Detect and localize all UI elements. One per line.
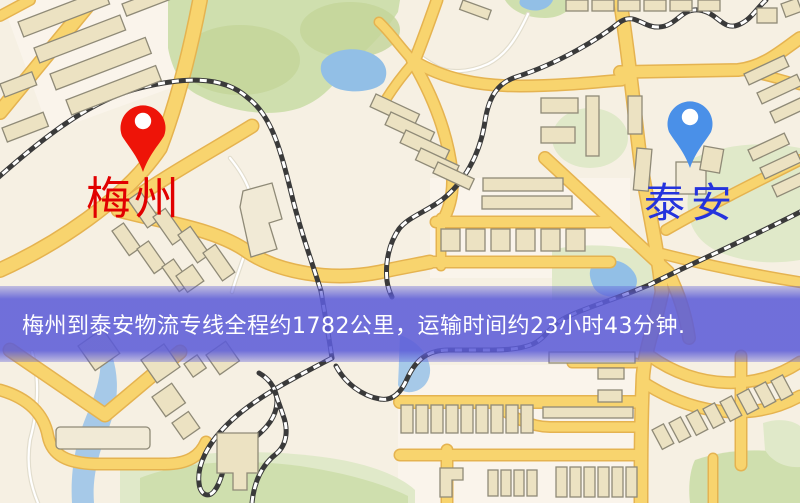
base-map — [0, 0, 800, 503]
red-map-pin-hole — [135, 113, 151, 129]
blue-map-pin-hole — [682, 109, 698, 125]
origin-city-label: 梅州 — [86, 176, 182, 221]
map-canvas[interactable]: 梅州 泰安 梅州到泰安物流专线全程约1782公里，运输时间约23小时43分钟. — [0, 0, 800, 503]
route-info-banner: 梅州到泰安物流专线全程约1782公里，运输时间约23小时43分钟. — [0, 286, 800, 362]
route-info-text: 梅州到泰安物流专线全程约1782公里，运输时间约23小时43分钟. — [0, 308, 685, 340]
destination-city-label: 泰安 — [644, 183, 738, 224]
